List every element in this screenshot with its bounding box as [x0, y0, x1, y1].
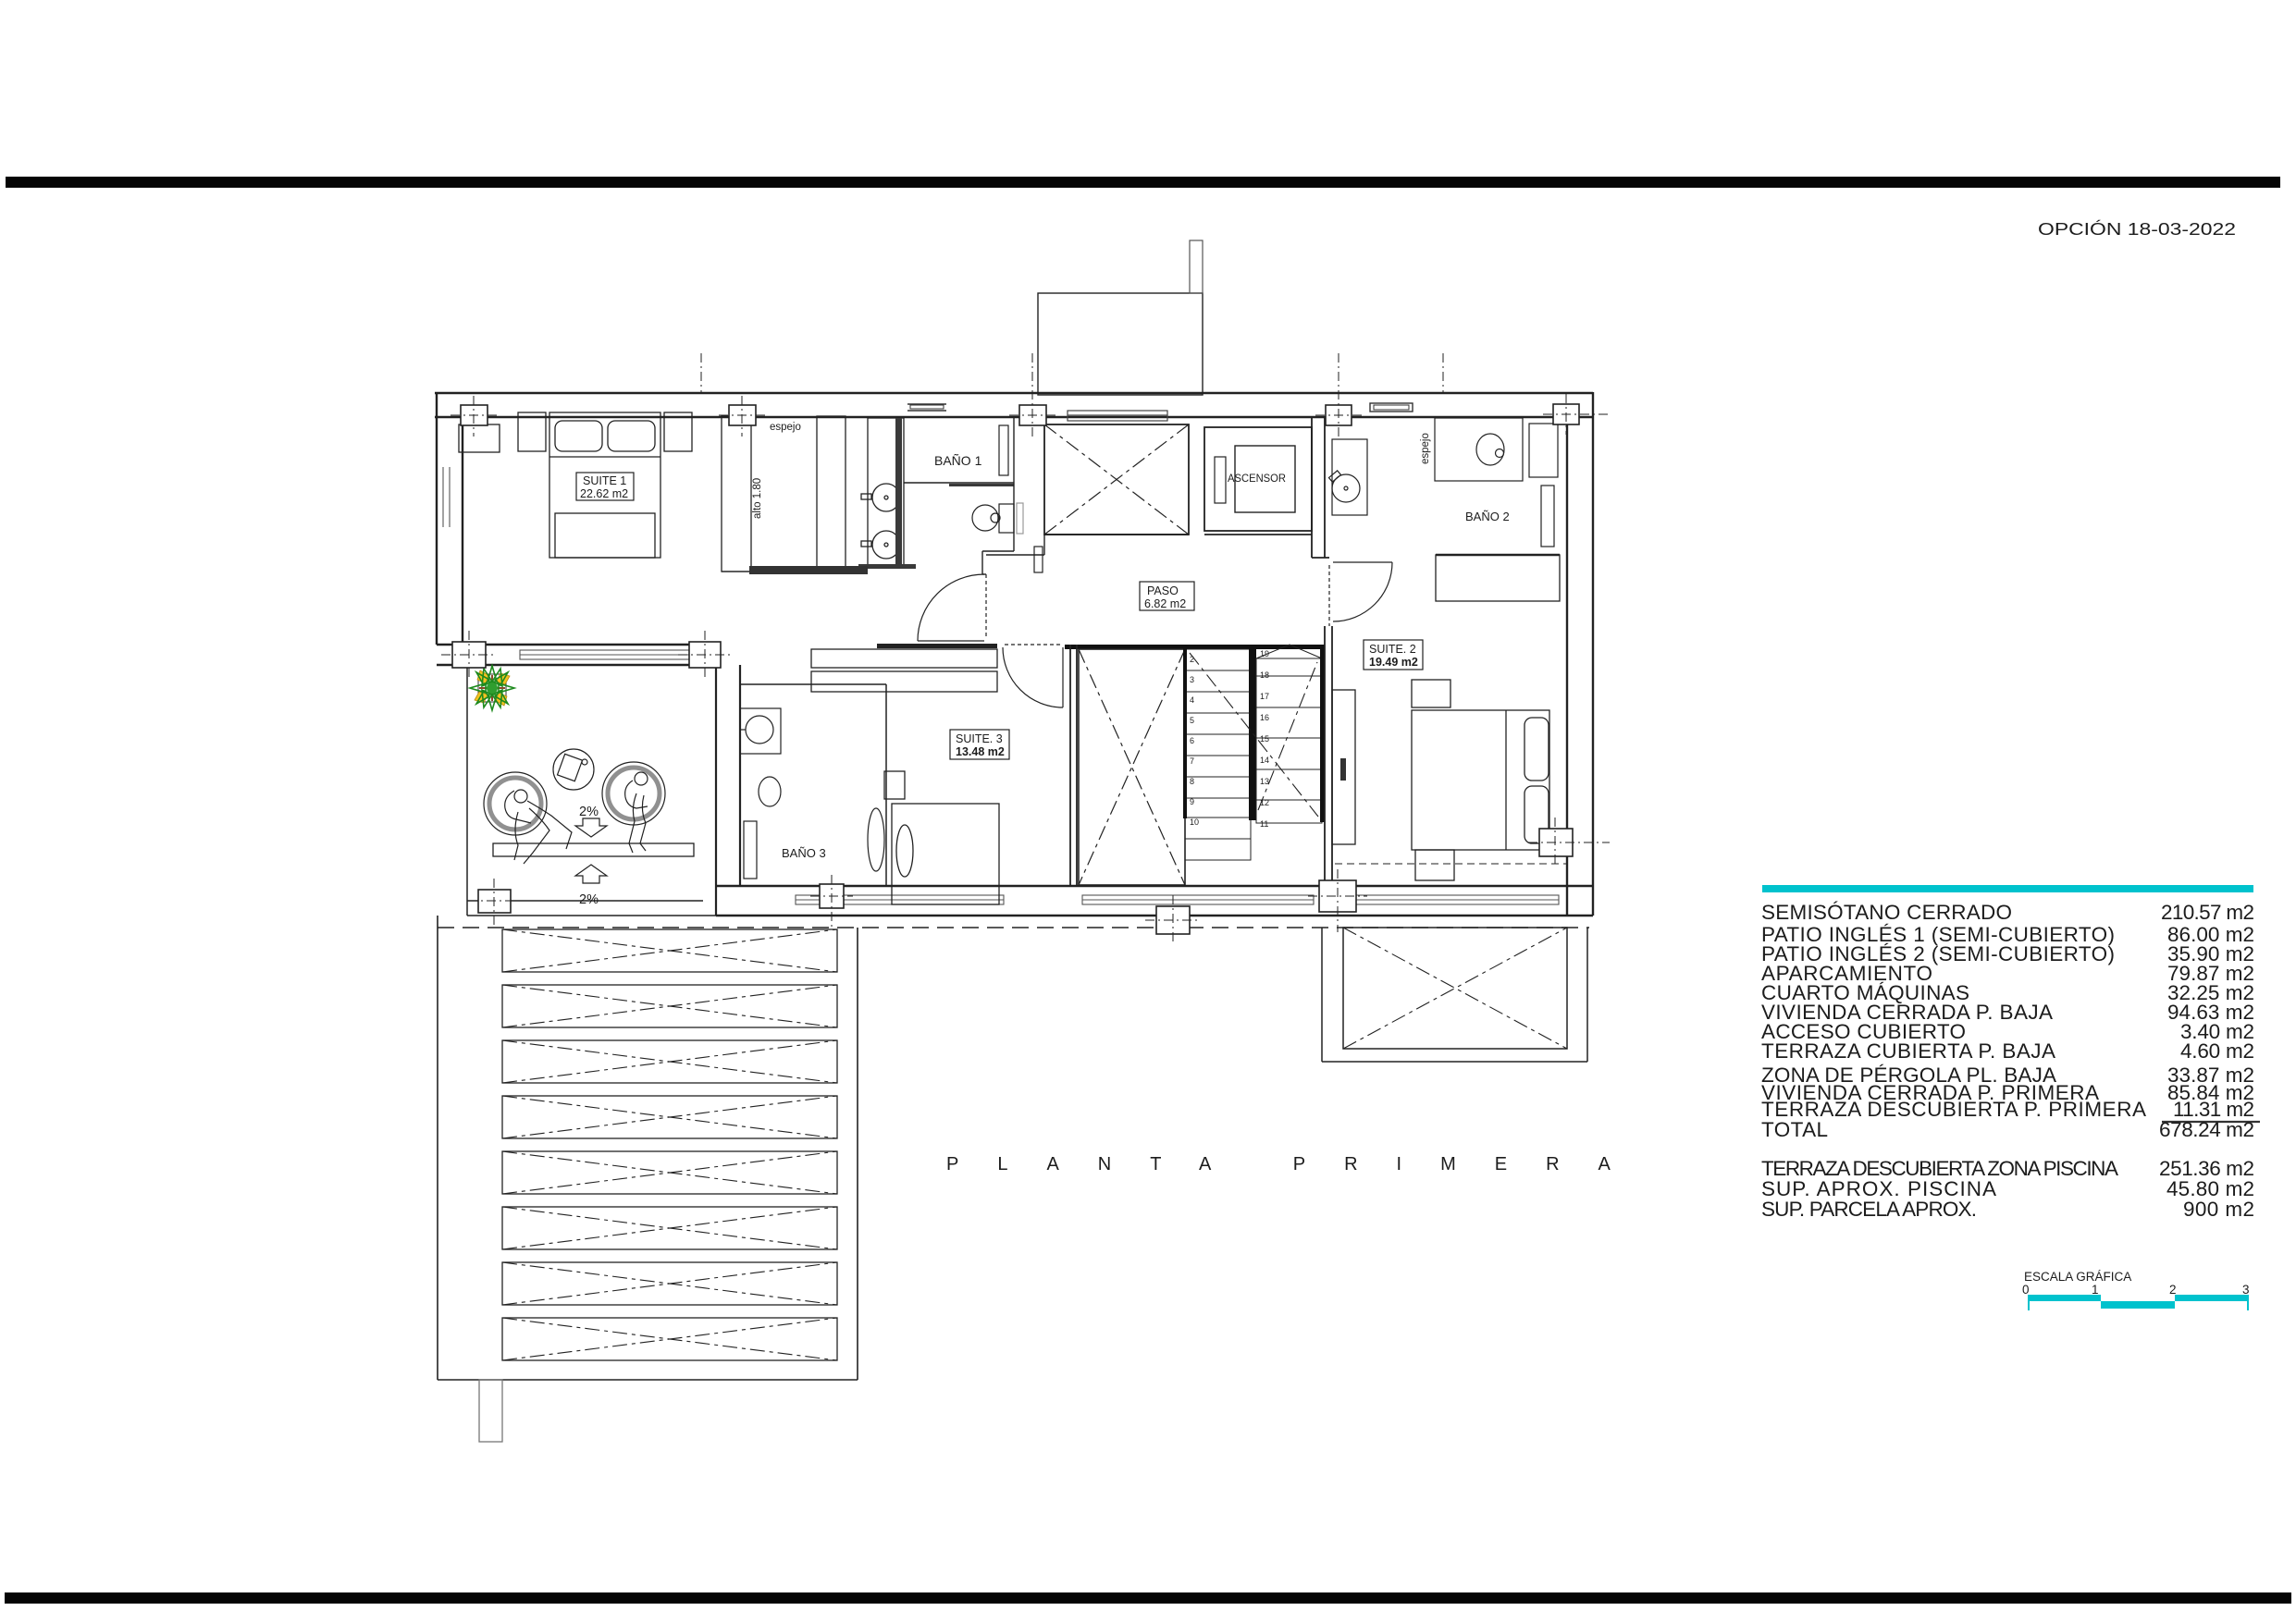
svg-text:19.49 m2: 19.49 m2 — [1369, 656, 1418, 669]
svg-text:espejo: espejo — [1420, 433, 1431, 464]
svg-text:TERRAZA CUBIERTA P. BAJA: TERRAZA CUBIERTA P. BAJA — [1761, 1039, 2055, 1063]
svg-text:2%: 2% — [579, 892, 599, 907]
svg-text:0: 0 — [2022, 1283, 2030, 1297]
svg-text:18: 18 — [1260, 670, 1269, 680]
svg-text:6.82 m2: 6.82 m2 — [1144, 597, 1186, 610]
svg-text:13.48 m2: 13.48 m2 — [956, 745, 1005, 758]
svg-text:210.57 m2: 210.57 m2 — [2161, 901, 2254, 924]
svg-text:4.60 m2: 4.60 m2 — [2180, 1039, 2254, 1063]
svg-text:12: 12 — [1260, 798, 1269, 807]
svg-text:alto 1.80: alto 1.80 — [752, 478, 763, 519]
svg-text:PLANTA PRIMERA: PLANTA PRIMERA — [946, 1154, 1649, 1174]
svg-text:3: 3 — [1190, 675, 1194, 684]
svg-text:SUITE. 2: SUITE. 2 — [1369, 643, 1416, 656]
svg-text:3: 3 — [2242, 1283, 2250, 1297]
svg-text:16: 16 — [1260, 713, 1269, 722]
svg-text:678.24 m2: 678.24 m2 — [2159, 1118, 2254, 1141]
svg-text:19: 19 — [1260, 649, 1269, 658]
svg-text:BAÑO 2: BAÑO 2 — [1465, 510, 1510, 523]
svg-text:SUITE. 3: SUITE. 3 — [956, 732, 1003, 745]
svg-text:SUITE 1: SUITE 1 — [583, 474, 626, 487]
svg-text:2: 2 — [2169, 1283, 2177, 1297]
svg-text:900 m2: 900 m2 — [2183, 1198, 2254, 1221]
svg-text:17: 17 — [1260, 692, 1269, 701]
svg-text:14: 14 — [1260, 756, 1269, 765]
svg-text:ESCALA GRÁFICA: ESCALA GRÁFICA — [2024, 1270, 2131, 1284]
svg-text:TOTAL: TOTAL — [1761, 1118, 1828, 1141]
svg-text:9: 9 — [1190, 797, 1194, 806]
svg-text:8: 8 — [1190, 777, 1194, 786]
svg-text:ASCENSOR: ASCENSOR — [1228, 472, 1286, 485]
svg-text:7: 7 — [1190, 756, 1194, 766]
svg-text:4: 4 — [1190, 695, 1194, 705]
svg-text:1: 1 — [2092, 1283, 2099, 1297]
svg-text:espejo: espejo — [770, 422, 801, 433]
svg-text:SEMISÓTANO CERRADO: SEMISÓTANO CERRADO — [1761, 901, 2012, 924]
svg-text:BAÑO 3: BAÑO 3 — [782, 846, 826, 860]
svg-text:BAÑO 1: BAÑO 1 — [934, 453, 982, 468]
svg-text:5: 5 — [1190, 716, 1194, 725]
svg-text:22.62 m2: 22.62 m2 — [580, 487, 628, 500]
svg-text:PASO: PASO — [1147, 584, 1179, 597]
svg-text:6: 6 — [1190, 736, 1194, 745]
svg-text:15: 15 — [1260, 734, 1269, 744]
svg-text:SUP. PARCELA APROX.: SUP. PARCELA APROX. — [1761, 1198, 1977, 1221]
svg-text:2: 2 — [1190, 655, 1194, 664]
svg-text:13: 13 — [1260, 777, 1269, 786]
svg-text:OPCIÓN 18-03-2022: OPCIÓN 18-03-2022 — [2038, 219, 2236, 239]
svg-text:2%: 2% — [579, 805, 599, 819]
svg-text:11: 11 — [1260, 819, 1268, 829]
svg-text:10: 10 — [1190, 818, 1199, 827]
